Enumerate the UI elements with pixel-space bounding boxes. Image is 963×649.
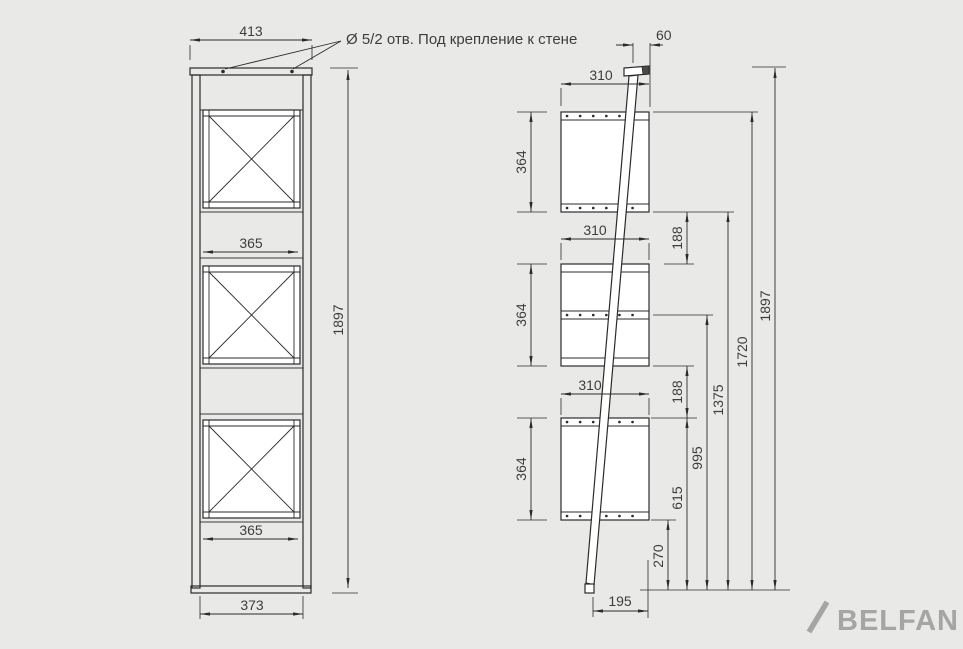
front-crate-2	[203, 266, 300, 364]
front-crate-1	[203, 110, 300, 208]
dim-label-level-995: 995	[689, 446, 705, 470]
front-crate-3	[203, 420, 300, 518]
hole-note-leader-right	[293, 41, 341, 69]
front-right-post	[303, 75, 311, 588]
front-shelf-band-2	[200, 368, 303, 414]
dim-label-crate-width-lower: 365	[239, 522, 263, 538]
dim-label-level-615: 615	[669, 486, 685, 510]
side-shelf-1	[561, 112, 649, 212]
front-header-panel	[200, 75, 303, 110]
shelf-1-profile	[561, 112, 649, 212]
dim-label-gap-lower: 188	[669, 380, 685, 404]
front-left-post	[192, 75, 200, 588]
hole-note-leader-left	[225, 41, 341, 69]
dim-label-level-1720: 1720	[734, 336, 750, 367]
ladder-pole-foot	[585, 584, 594, 593]
side-view-dimensions: 60 310 310 310 364 364 364 188 188	[513, 27, 790, 618]
dim-label-shelf-height-middle: 364	[513, 303, 529, 327]
dim-label-foot-offset: 195	[608, 593, 632, 609]
front-bottom-rail	[191, 586, 311, 593]
dim-label-front-total-height: 1897	[330, 304, 346, 335]
side-view	[561, 66, 649, 593]
dim-label-shelf-depth-middle: 310	[583, 222, 607, 238]
dim-label-side-total-height: 1897	[757, 290, 773, 321]
dim-label-shelf-height-top: 364	[513, 150, 529, 174]
dim-label-shelf-height-bottom: 364	[513, 457, 529, 481]
dim-label-crate-width-upper: 365	[239, 235, 263, 251]
dim-label-shelf-depth-top: 310	[589, 67, 613, 83]
ladder-pole-cap-cut-hatch	[642, 66, 649, 75]
dim-label-level-1375: 1375	[710, 384, 726, 415]
side-shelf-2	[561, 264, 649, 366]
dim-label-level-270: 270	[650, 544, 666, 568]
dim-label-gap-upper: 188	[669, 226, 685, 250]
wall-mount-hole-right	[290, 70, 294, 74]
hole-note-text: Ø 5/2 отв. Под крепление к стене	[346, 31, 577, 48]
belfan-logo-text: BELFAN	[837, 605, 959, 637]
dim-label-base-width: 373	[240, 597, 264, 613]
front-view	[190, 68, 312, 593]
dim-label-top-offset: 60	[656, 27, 672, 43]
drawing-page: 413 Ø 5/2 отв. Под крепление к стене 365…	[0, 0, 963, 649]
dim-label-shelf-depth-bottom: 310	[578, 377, 602, 393]
belfan-logo-slash-icon	[809, 602, 827, 632]
wall-mount-hole-left	[221, 70, 225, 74]
belfan-logo: BELFAN	[809, 602, 959, 637]
dim-label-top-width: 413	[239, 23, 263, 39]
technical-drawing-canvas: 413 Ø 5/2 отв. Под крепление к стене 365…	[0, 0, 963, 649]
